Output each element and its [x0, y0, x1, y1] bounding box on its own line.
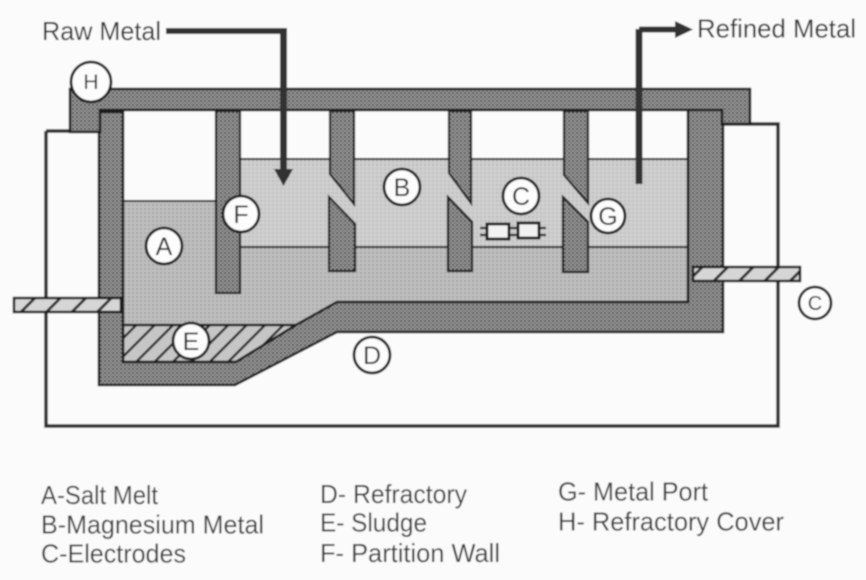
- svg-text:C: C: [512, 183, 530, 211]
- svg-text:C: C: [808, 293, 822, 315]
- svg-text:D: D: [363, 342, 381, 370]
- svg-text:F: F: [233, 201, 248, 229]
- svg-text:G- Metal Port: G- Metal Port: [558, 477, 709, 507]
- svg-text:H: H: [83, 71, 98, 94]
- svg-text:A-Salt Melt: A-Salt Melt: [41, 480, 159, 510]
- svg-text:Refined Metal: Refined Metal: [697, 14, 856, 44]
- svg-text:D- Refractory: D- Refractory: [320, 479, 467, 509]
- svg-text:E: E: [183, 328, 200, 356]
- svg-text:A: A: [156, 233, 173, 261]
- svg-text:E- Sludge: E- Sludge: [320, 508, 427, 538]
- svg-text:F- Partition Wall: F- Partition Wall: [320, 538, 500, 568]
- svg-text:H- Refractory Cover: H- Refractory Cover: [558, 507, 784, 537]
- svg-text:Raw Metal: Raw Metal: [42, 16, 161, 46]
- svg-text:B-Magnesium Metal: B-Magnesium Metal: [41, 510, 264, 540]
- svg-text:B: B: [394, 174, 411, 202]
- svg-text:G: G: [598, 203, 617, 231]
- svg-text:C-Electrodes: C-Electrodes: [41, 539, 186, 569]
